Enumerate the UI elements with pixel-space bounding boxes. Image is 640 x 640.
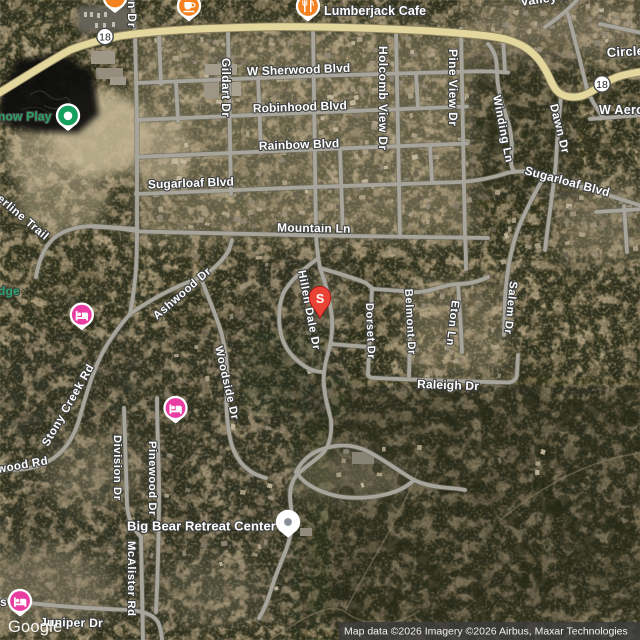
svg-text:Raleigh Dr: Raleigh Dr <box>417 377 480 393</box>
svg-text:McAlister Rd: McAlister Rd <box>125 541 137 617</box>
svg-text:Holcomb View Dr: Holcomb View Dr <box>376 46 390 150</box>
svg-text:dge: dge <box>0 284 20 298</box>
svg-text:Pinewood Dr: Pinewood Dr <box>146 441 158 516</box>
svg-text:Circle: Circle <box>606 43 640 60</box>
svg-text:S: S <box>316 292 324 306</box>
svg-text:W Aero: W Aero <box>599 103 640 117</box>
svg-text:now Play: now Play <box>0 110 52 124</box>
svg-text:s: s <box>0 595 7 609</box>
svg-text:18: 18 <box>99 31 111 43</box>
svg-text:Pine View Dr: Pine View Dr <box>446 49 460 126</box>
svg-text:Map data ©2026 Imagery ©2026 A: Map data ©2026 Imagery ©2026 Airbus, Max… <box>344 626 628 638</box>
svg-text:Rainbow Blvd: Rainbow Blvd <box>259 136 340 153</box>
svg-text:Gildart Dr: Gildart Dr <box>219 58 233 117</box>
svg-text:Dorset Dr: Dorset Dr <box>363 303 377 360</box>
svg-text:Big Bear Retreat Center: Big Bear Retreat Center <box>127 519 276 534</box>
svg-text:Mountain Ln: Mountain Ln <box>277 221 351 236</box>
svg-text:Google: Google <box>8 618 62 636</box>
svg-text:n Dr: n Dr <box>125 1 139 28</box>
svg-text:18: 18 <box>596 79 608 91</box>
svg-text:Division Dr: Division Dr <box>111 435 123 501</box>
svg-text:Lumberjack Cafe: Lumberjack Cafe <box>324 4 426 18</box>
